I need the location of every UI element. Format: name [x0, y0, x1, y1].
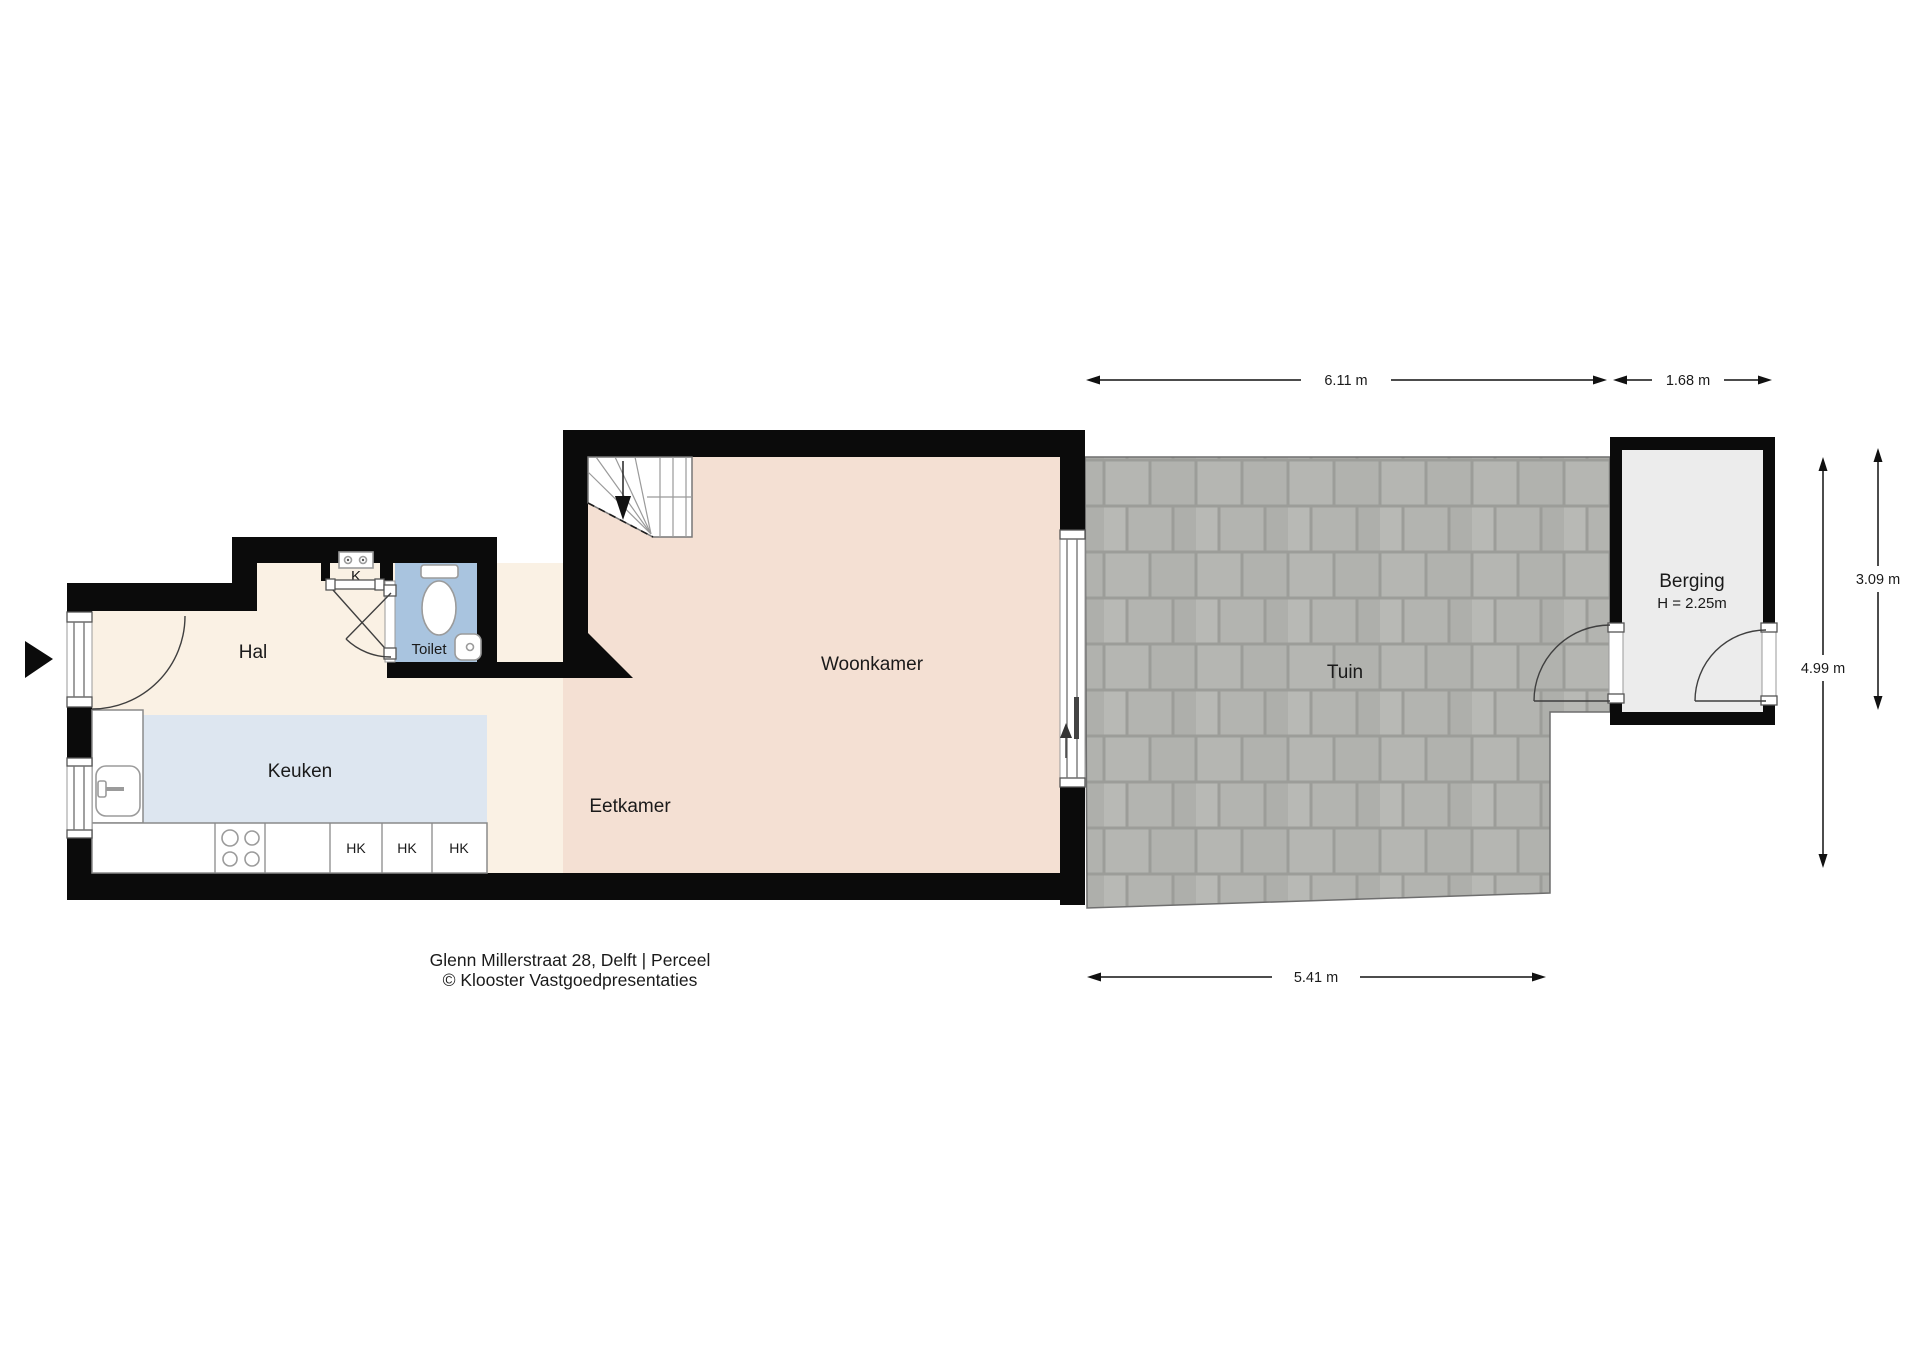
meter-closet-door-cap-right — [375, 579, 384, 590]
kitchen-faucet-base — [98, 781, 106, 797]
cabinet-hk-label-3: HK — [449, 840, 469, 856]
kitchen-window-opening — [67, 758, 92, 838]
meter-closet-right-wall — [380, 537, 393, 581]
toilet-cistern — [421, 565, 458, 578]
cabinet-hk-label-2: HK — [397, 840, 417, 856]
front-door-frame-bottom — [67, 697, 92, 707]
sliding-door-opening — [1060, 530, 1085, 787]
dim-garden-width-label: 6.11 m — [1324, 373, 1367, 389]
berging-height-label: H = 2.25m — [1657, 595, 1727, 612]
dim-berging-depth: 3.09 m — [1856, 448, 1900, 710]
meter-closet-left-wall — [321, 537, 330, 581]
keuken-label: Keuken — [268, 761, 332, 782]
toilet-bowl-icon — [422, 581, 456, 635]
counter-bottom-row — [92, 823, 487, 873]
livingroom-left-wall — [563, 430, 588, 678]
berging-right-door-opening — [1762, 623, 1776, 705]
copyright-line: © Klooster Vastgoedpresentaties — [443, 970, 698, 990]
cabinet-hk-label-1: HK — [346, 840, 366, 856]
meter-dial-dot — [347, 559, 349, 561]
garden-sliding-door — [1060, 530, 1085, 787]
address-line: Glenn Millerstraat 28, Delft | Perceel — [430, 950, 711, 970]
title-block: Glenn Millerstraat 28, Delft | Perceel ©… — [430, 950, 711, 990]
hal-label: Hal — [239, 642, 268, 663]
berging-left-door-frame-bottom — [1608, 694, 1624, 703]
berging-left-door-frame-top — [1608, 623, 1624, 632]
livingroom-top-wall — [563, 430, 1085, 457]
meter-dial-dot — [362, 559, 364, 561]
kitchen-window-cap-top — [67, 758, 92, 766]
sliding-door-handle — [1074, 697, 1079, 739]
kitchen-faucet-spout — [106, 787, 124, 791]
dim-garden-bottom-width: 5.41 m — [1087, 970, 1546, 986]
toilet-bottom-wall — [387, 662, 563, 678]
toilet-hand-basin — [455, 634, 481, 660]
front-door-frame-top — [67, 612, 92, 622]
dim-berging-depth-label: 3.09 m — [1856, 572, 1900, 588]
dim-garden-depth-label: 4.99 m — [1801, 661, 1845, 677]
toilet-label: Toilet — [411, 641, 447, 658]
meter-closet-door-track — [328, 580, 382, 589]
hall-top-wall — [67, 583, 257, 611]
dim-berging-width-label: 1.68 m — [1666, 373, 1710, 389]
meter-closet-door-cap-left — [326, 579, 335, 590]
front-door-opening — [67, 612, 92, 707]
entrance-arrow-icon — [25, 641, 53, 678]
dim-garden-bottom-width-label: 5.41 m — [1294, 970, 1338, 986]
berging-bottom-wall — [1610, 712, 1775, 725]
bottom-exterior-wall — [67, 873, 1085, 900]
berging-label: Berging — [1659, 571, 1725, 592]
berging-left-door-opening — [1609, 623, 1623, 703]
kitchen-window-cap-bottom — [67, 830, 92, 838]
tuin-label: Tuin — [1327, 662, 1363, 683]
dim-berging-width: 1.68 m — [1613, 373, 1772, 389]
eetkamer-label: Eetkamer — [589, 796, 671, 817]
dim-garden-depth: 4.99 m — [1801, 457, 1845, 868]
berging-top-wall — [1610, 437, 1775, 450]
woonkamer-label: Woonkamer — [821, 654, 924, 675]
floorplan-canvas: Berging H = 2.25m — [0, 0, 1920, 1358]
sliding-door-cap-top — [1060, 530, 1085, 539]
sliding-door-cap-bottom — [1060, 778, 1085, 787]
dim-garden-width: 6.11 m — [1086, 373, 1607, 389]
kitchen-window — [67, 758, 92, 838]
